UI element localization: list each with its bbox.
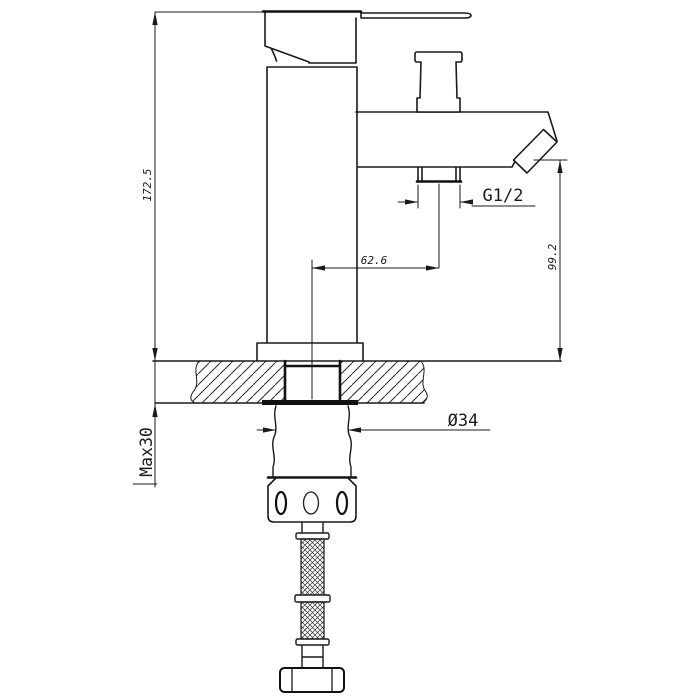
dimension-thin-lines bbox=[133, 12, 567, 487]
shank-broken-outline bbox=[273, 406, 352, 477]
faucet-body-paths bbox=[153, 12, 561, 403]
spout-center-offset-label: 62.6 bbox=[361, 254, 388, 267]
hose-braid-upper bbox=[301, 539, 324, 596]
overall-height-label: 172.5 bbox=[141, 168, 154, 201]
hose-end-nut bbox=[280, 668, 344, 692]
spout-outlet-height-label: 99.2 bbox=[546, 243, 559, 270]
hose-nut-block bbox=[268, 478, 356, 522]
mounting-hole-diameter-label: Ø34 bbox=[448, 411, 479, 431]
counter-hatch-left bbox=[191, 361, 285, 403]
hose-collar-bottom bbox=[296, 639, 329, 645]
hose-collar-top bbox=[296, 533, 329, 539]
hose-braid-lower bbox=[301, 602, 324, 639]
technical-drawing-canvas: 172.5 Max30 99.2 62.6 G1/2 Ø34 bbox=[0, 0, 700, 700]
diverter-knob bbox=[415, 52, 462, 112]
mounting-flange bbox=[262, 400, 358, 405]
faucet-dimension-drawing: 172.5 Max30 99.2 62.6 G1/2 Ø34 bbox=[0, 0, 700, 700]
faucet-outline bbox=[153, 12, 561, 478]
shower-hose-thread-label: G1/2 bbox=[483, 186, 524, 206]
hose-band-middle bbox=[295, 595, 330, 602]
max-counter-thickness-label: Max30 bbox=[137, 427, 156, 477]
spout-tip bbox=[514, 130, 558, 174]
counter-hatch-right bbox=[340, 361, 427, 403]
dimension-lines bbox=[133, 12, 567, 487]
supply-hose-assembly bbox=[268, 406, 356, 692]
